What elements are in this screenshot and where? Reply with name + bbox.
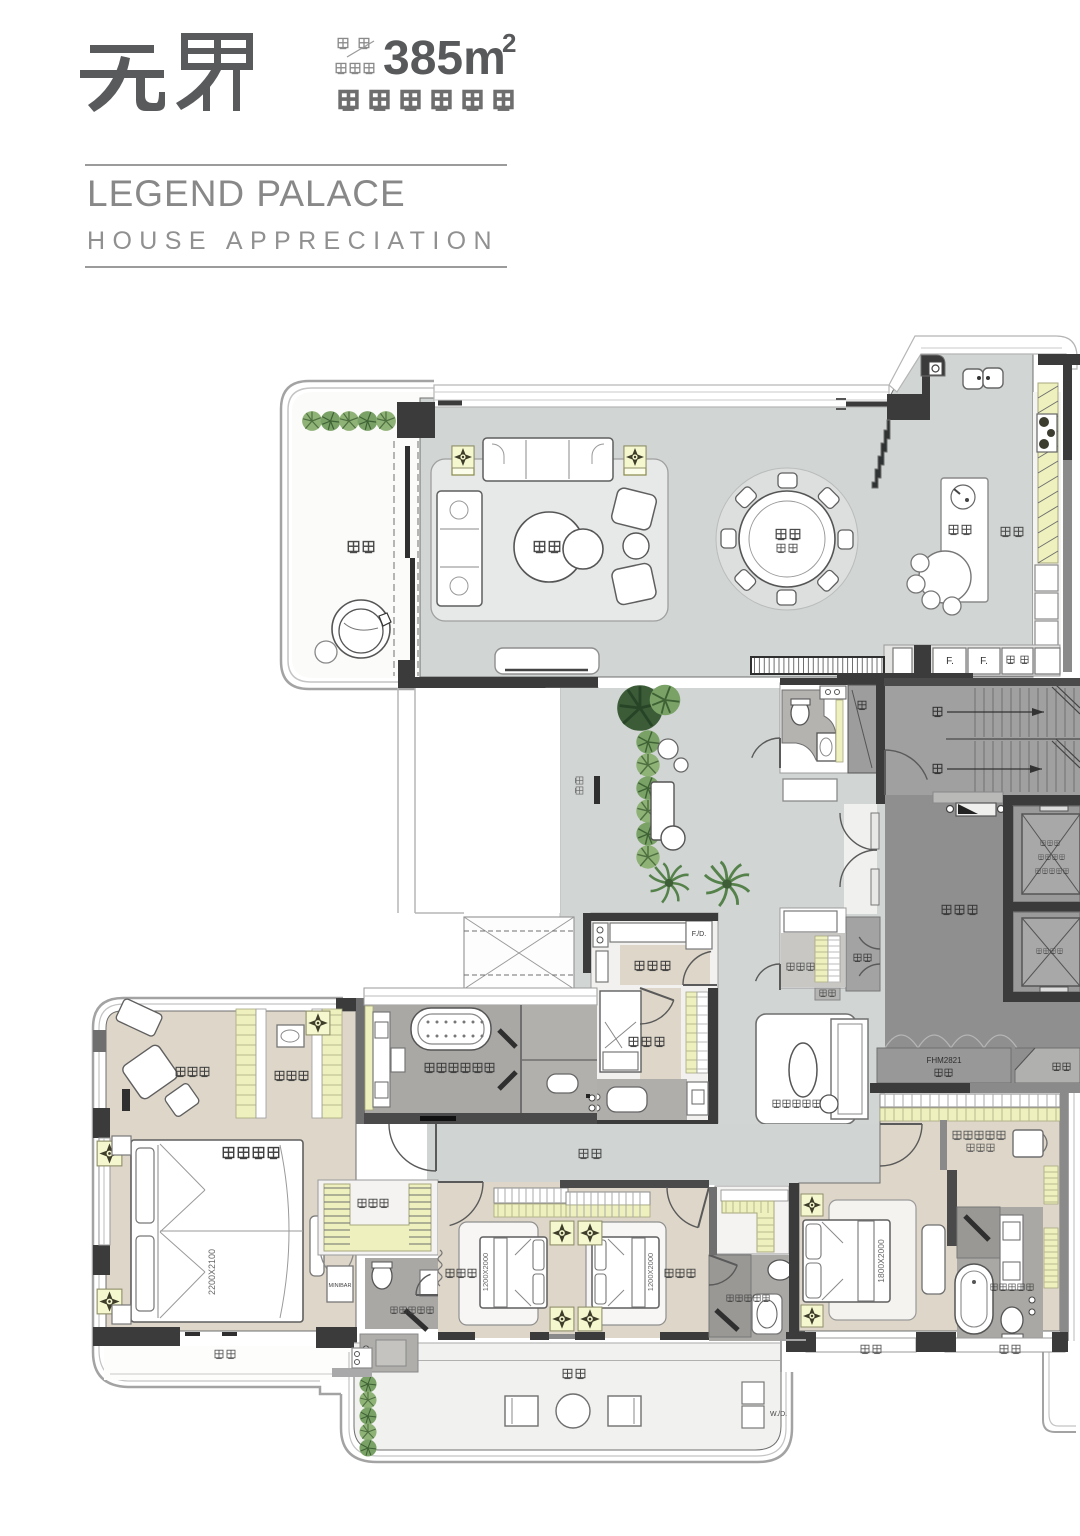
- svg-text:F.: F.: [946, 656, 954, 667]
- svg-text:1200X2000: 1200X2000: [646, 1253, 655, 1291]
- svg-text:MINIBAR: MINIBAR: [329, 1283, 352, 1289]
- svg-text:2200X2100: 2200X2100: [207, 1249, 217, 1295]
- svg-text:LEGEND PALACE: LEGEND PALACE: [87, 173, 406, 214]
- svg-text:HOUSE APPRECIATION: HOUSE APPRECIATION: [87, 227, 499, 255]
- svg-text:FHM2821: FHM2821: [926, 1056, 962, 1065]
- svg-text:W./D.: W./D.: [770, 1411, 787, 1418]
- svg-text:F.: F.: [980, 656, 988, 667]
- svg-text:1800X2000: 1800X2000: [876, 1239, 886, 1283]
- svg-text:385m: 385m: [383, 32, 506, 85]
- svg-text:F./D.: F./D.: [692, 931, 706, 938]
- svg-text:1200X2000: 1200X2000: [481, 1253, 490, 1291]
- svg-text:2: 2: [502, 28, 516, 58]
